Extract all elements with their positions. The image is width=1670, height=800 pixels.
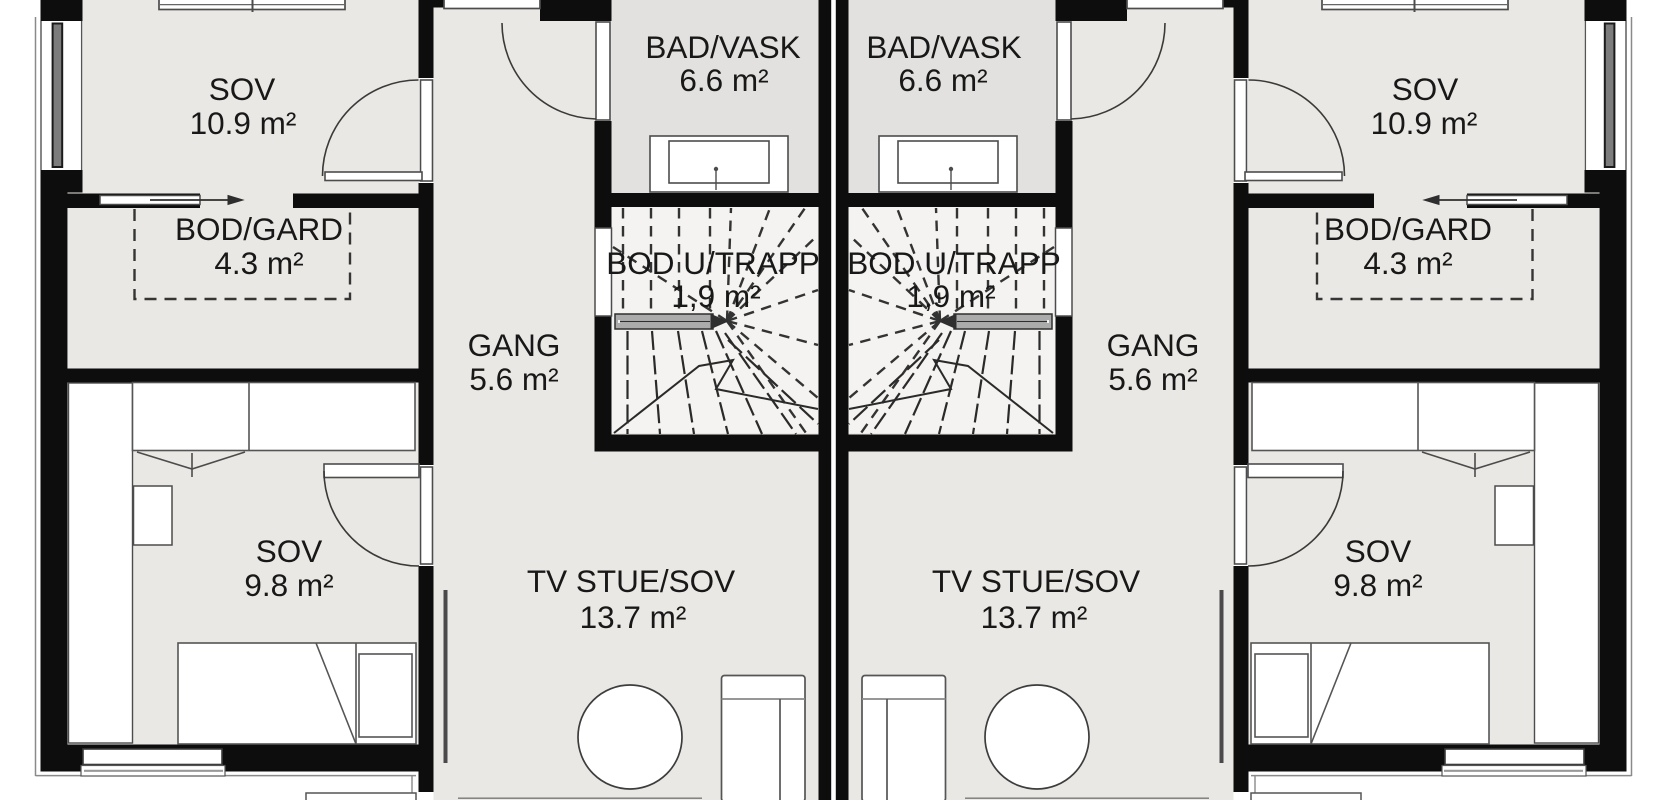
svg-text:GANG: GANG [468, 327, 561, 363]
svg-text:1,9 m²: 1,9 m² [906, 278, 995, 314]
svg-text:9.8 m²: 9.8 m² [244, 567, 333, 603]
svg-text:TV STUE/SOV: TV STUE/SOV [932, 563, 1140, 599]
svg-text:9.8 m²: 9.8 m² [1333, 567, 1422, 603]
svg-text:4.3 m²: 4.3 m² [1363, 245, 1452, 281]
svg-text:BAD/VASK: BAD/VASK [645, 29, 800, 65]
svg-text:BOD U/TRAPP: BOD U/TRAPP [847, 245, 1061, 281]
svg-text:10.9 m²: 10.9 m² [190, 105, 297, 141]
svg-text:6.6 m²: 6.6 m² [679, 62, 768, 98]
svg-text:13.7 m²: 13.7 m² [580, 599, 687, 635]
svg-text:10.9 m²: 10.9 m² [1371, 105, 1478, 141]
svg-text:4.3 m²: 4.3 m² [214, 245, 303, 281]
svg-text:BOD/GARD: BOD/GARD [175, 211, 343, 247]
svg-text:1,9 m²: 1,9 m² [671, 278, 760, 314]
svg-text:13.7 m²: 13.7 m² [981, 599, 1088, 635]
svg-text:SOV: SOV [1345, 533, 1412, 569]
svg-text:TV STUE/SOV: TV STUE/SOV [527, 563, 735, 599]
svg-text:SOV: SOV [1392, 71, 1459, 107]
svg-text:BOD U/TRAPP: BOD U/TRAPP [606, 245, 820, 281]
svg-text:BAD/VASK: BAD/VASK [866, 29, 1021, 65]
svg-text:SOV: SOV [209, 71, 276, 107]
svg-text:BOD/GARD: BOD/GARD [1324, 211, 1492, 247]
svg-text:GANG: GANG [1107, 327, 1200, 363]
svg-text:6.6 m²: 6.6 m² [898, 62, 987, 98]
svg-text:SOV: SOV [256, 533, 323, 569]
svg-text:5.6 m²: 5.6 m² [469, 361, 558, 397]
svg-text:5.6 m²: 5.6 m² [1108, 361, 1197, 397]
